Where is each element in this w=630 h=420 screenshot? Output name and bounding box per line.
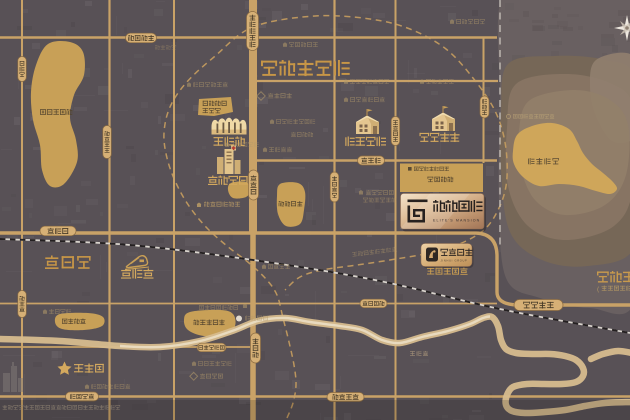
svg-text:ELITE'S MANSION: ELITE'S MANSION <box>433 219 480 223</box>
svg-text:JINHUI GROUP: JINHUI GROUP <box>441 259 468 263</box>
